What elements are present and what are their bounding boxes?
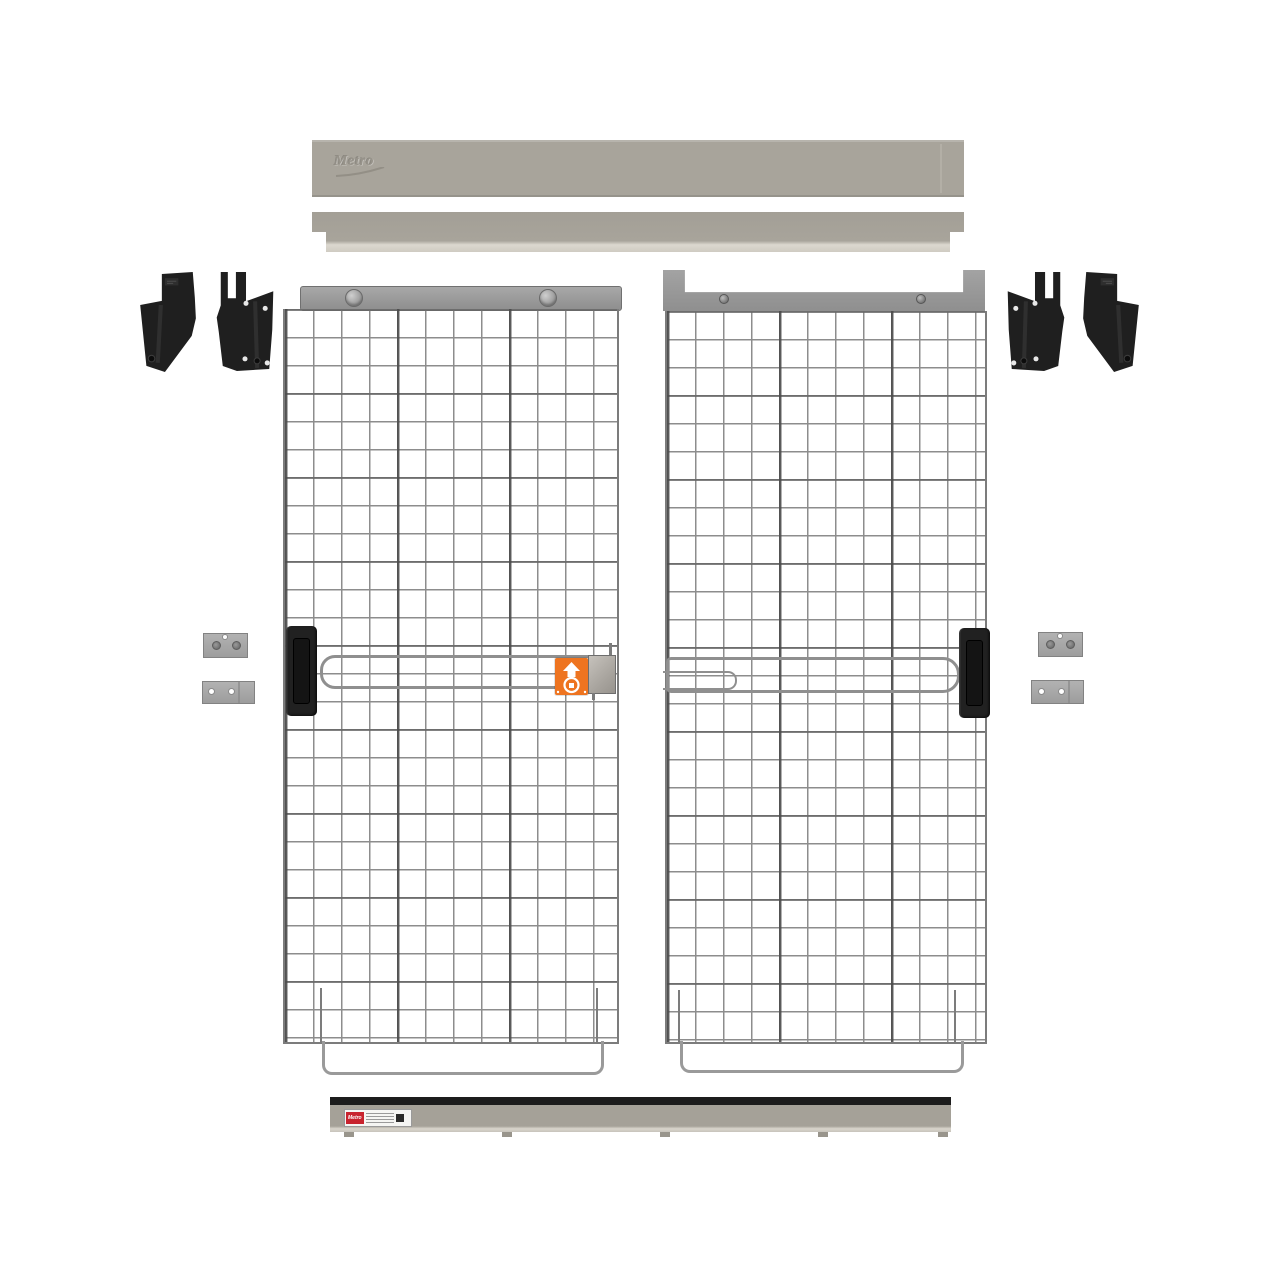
label-code-box (396, 1114, 404, 1122)
right-outer-wall-bracket (1082, 272, 1142, 372)
metro-logo: Metro (334, 152, 404, 182)
bottom-track-label: Metro (344, 1109, 412, 1127)
bottom-track-foot (344, 1132, 354, 1137)
left-inner-fork-bracket (215, 271, 275, 371)
plate-hole (223, 635, 227, 639)
plate-hole (1066, 640, 1075, 649)
left-door-handle (286, 626, 317, 716)
left-door-header-bar (300, 286, 622, 311)
handle-recess (966, 640, 983, 706)
plate-hole (1059, 689, 1064, 694)
right-door-slide-bolt-loop (663, 671, 737, 690)
right-door-bottom-guide-loop (680, 1041, 964, 1073)
screw-icon (719, 294, 729, 304)
plate-hole (1058, 634, 1062, 638)
right-mounting-plate-top (1038, 632, 1083, 657)
right-mounting-plate-bottom (1031, 680, 1084, 704)
left-mounting-plate-top (203, 633, 248, 658)
metro-logo-text: Metro (334, 153, 374, 169)
flat-bracket-shape (137, 272, 197, 372)
bottom-track-foot (938, 1132, 948, 1137)
product-diagram: Metro (0, 0, 1280, 1280)
lift-up-arrow-icon (555, 658, 588, 695)
flat-bracket-shape (1082, 272, 1142, 372)
plate-hole (209, 689, 214, 694)
plate-hole (212, 641, 221, 650)
left-door-bottom-guide-loop (322, 1041, 604, 1075)
plate-seam (238, 682, 240, 703)
upper-track (312, 212, 964, 252)
bottom-track-rub-strip (330, 1097, 951, 1105)
plate-hole (1046, 640, 1055, 649)
plate-seam (1068, 681, 1070, 703)
right-inner-fork-bracket (1006, 271, 1066, 371)
bottom-track-foot (502, 1132, 512, 1137)
right-door-reinforce-wire (954, 990, 956, 1042)
handle-recess (293, 638, 310, 704)
plate-hole (229, 689, 234, 694)
plate-hole (232, 641, 241, 650)
door-roller-icon (345, 289, 363, 307)
safety-label (555, 658, 588, 695)
screw-icon (916, 294, 926, 304)
door-roller-icon (539, 289, 557, 307)
metro-red-logo: Metro (346, 1112, 364, 1124)
left-mounting-plate-bottom (202, 681, 255, 704)
left-door-reinforce-wire (320, 988, 322, 1042)
fork-bracket-shape (215, 271, 275, 371)
right-door-header-bar (663, 270, 985, 311)
label-text-lines (366, 1113, 394, 1123)
slide-latch-plate (588, 655, 616, 694)
left-door-reinforce-wire (596, 988, 598, 1042)
top-track-cover: Metro (312, 140, 964, 197)
bottom-track (330, 1105, 951, 1132)
bottom-track-foot (818, 1132, 828, 1137)
plate-hole (1039, 689, 1044, 694)
right-door-handle (959, 628, 990, 718)
bottom-track-foot (660, 1132, 670, 1137)
cover-seam (940, 144, 942, 193)
fork-bracket-shape (1006, 271, 1066, 371)
left-outer-wall-bracket (137, 272, 197, 372)
latch-foot (592, 693, 595, 700)
right-door-reinforce-wire (678, 990, 680, 1042)
